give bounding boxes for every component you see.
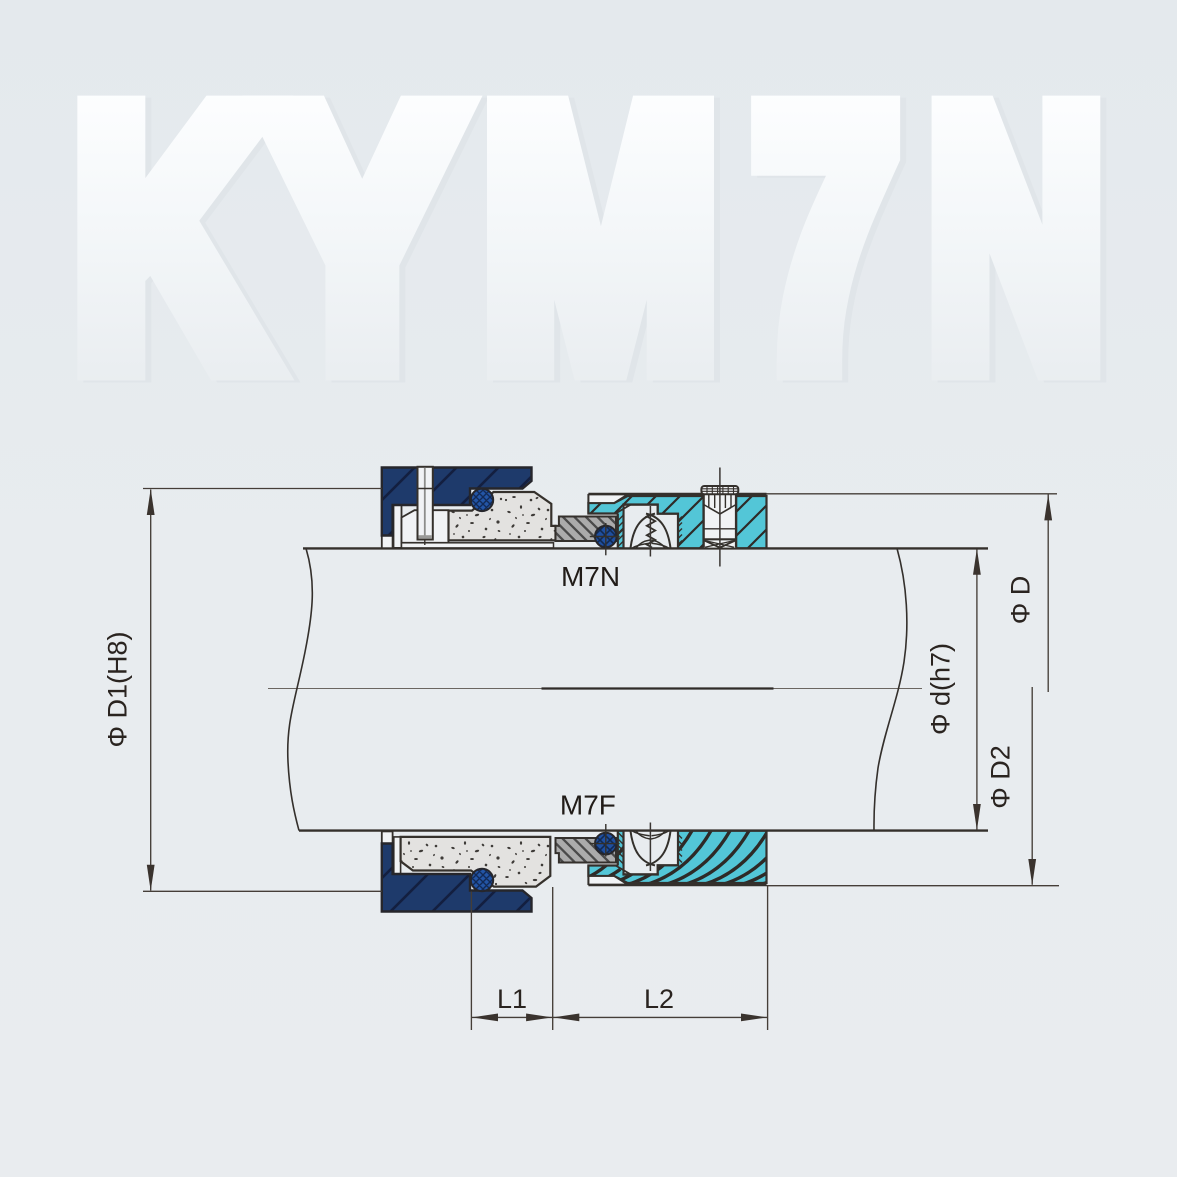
- svg-text:Y: Y: [266, 40, 459, 437]
- svg-text:Φ D2: Φ D2: [986, 745, 1016, 809]
- svg-text:M7F: M7F: [560, 790, 616, 821]
- svg-text:N: N: [929, 40, 1103, 437]
- svg-text:L1: L1: [497, 984, 527, 1014]
- svg-text:M: M: [484, 40, 717, 437]
- svg-text:Φ D1(H8): Φ D1(H8): [103, 631, 133, 747]
- svg-text:7: 7: [755, 40, 898, 437]
- svg-text:M7N: M7N: [561, 561, 620, 592]
- svg-text:Φ d(h7): Φ d(h7): [926, 643, 956, 735]
- svg-text:Φ D: Φ D: [1006, 576, 1036, 625]
- svg-text:K: K: [75, 40, 267, 437]
- svg-text:L2: L2: [644, 984, 674, 1014]
